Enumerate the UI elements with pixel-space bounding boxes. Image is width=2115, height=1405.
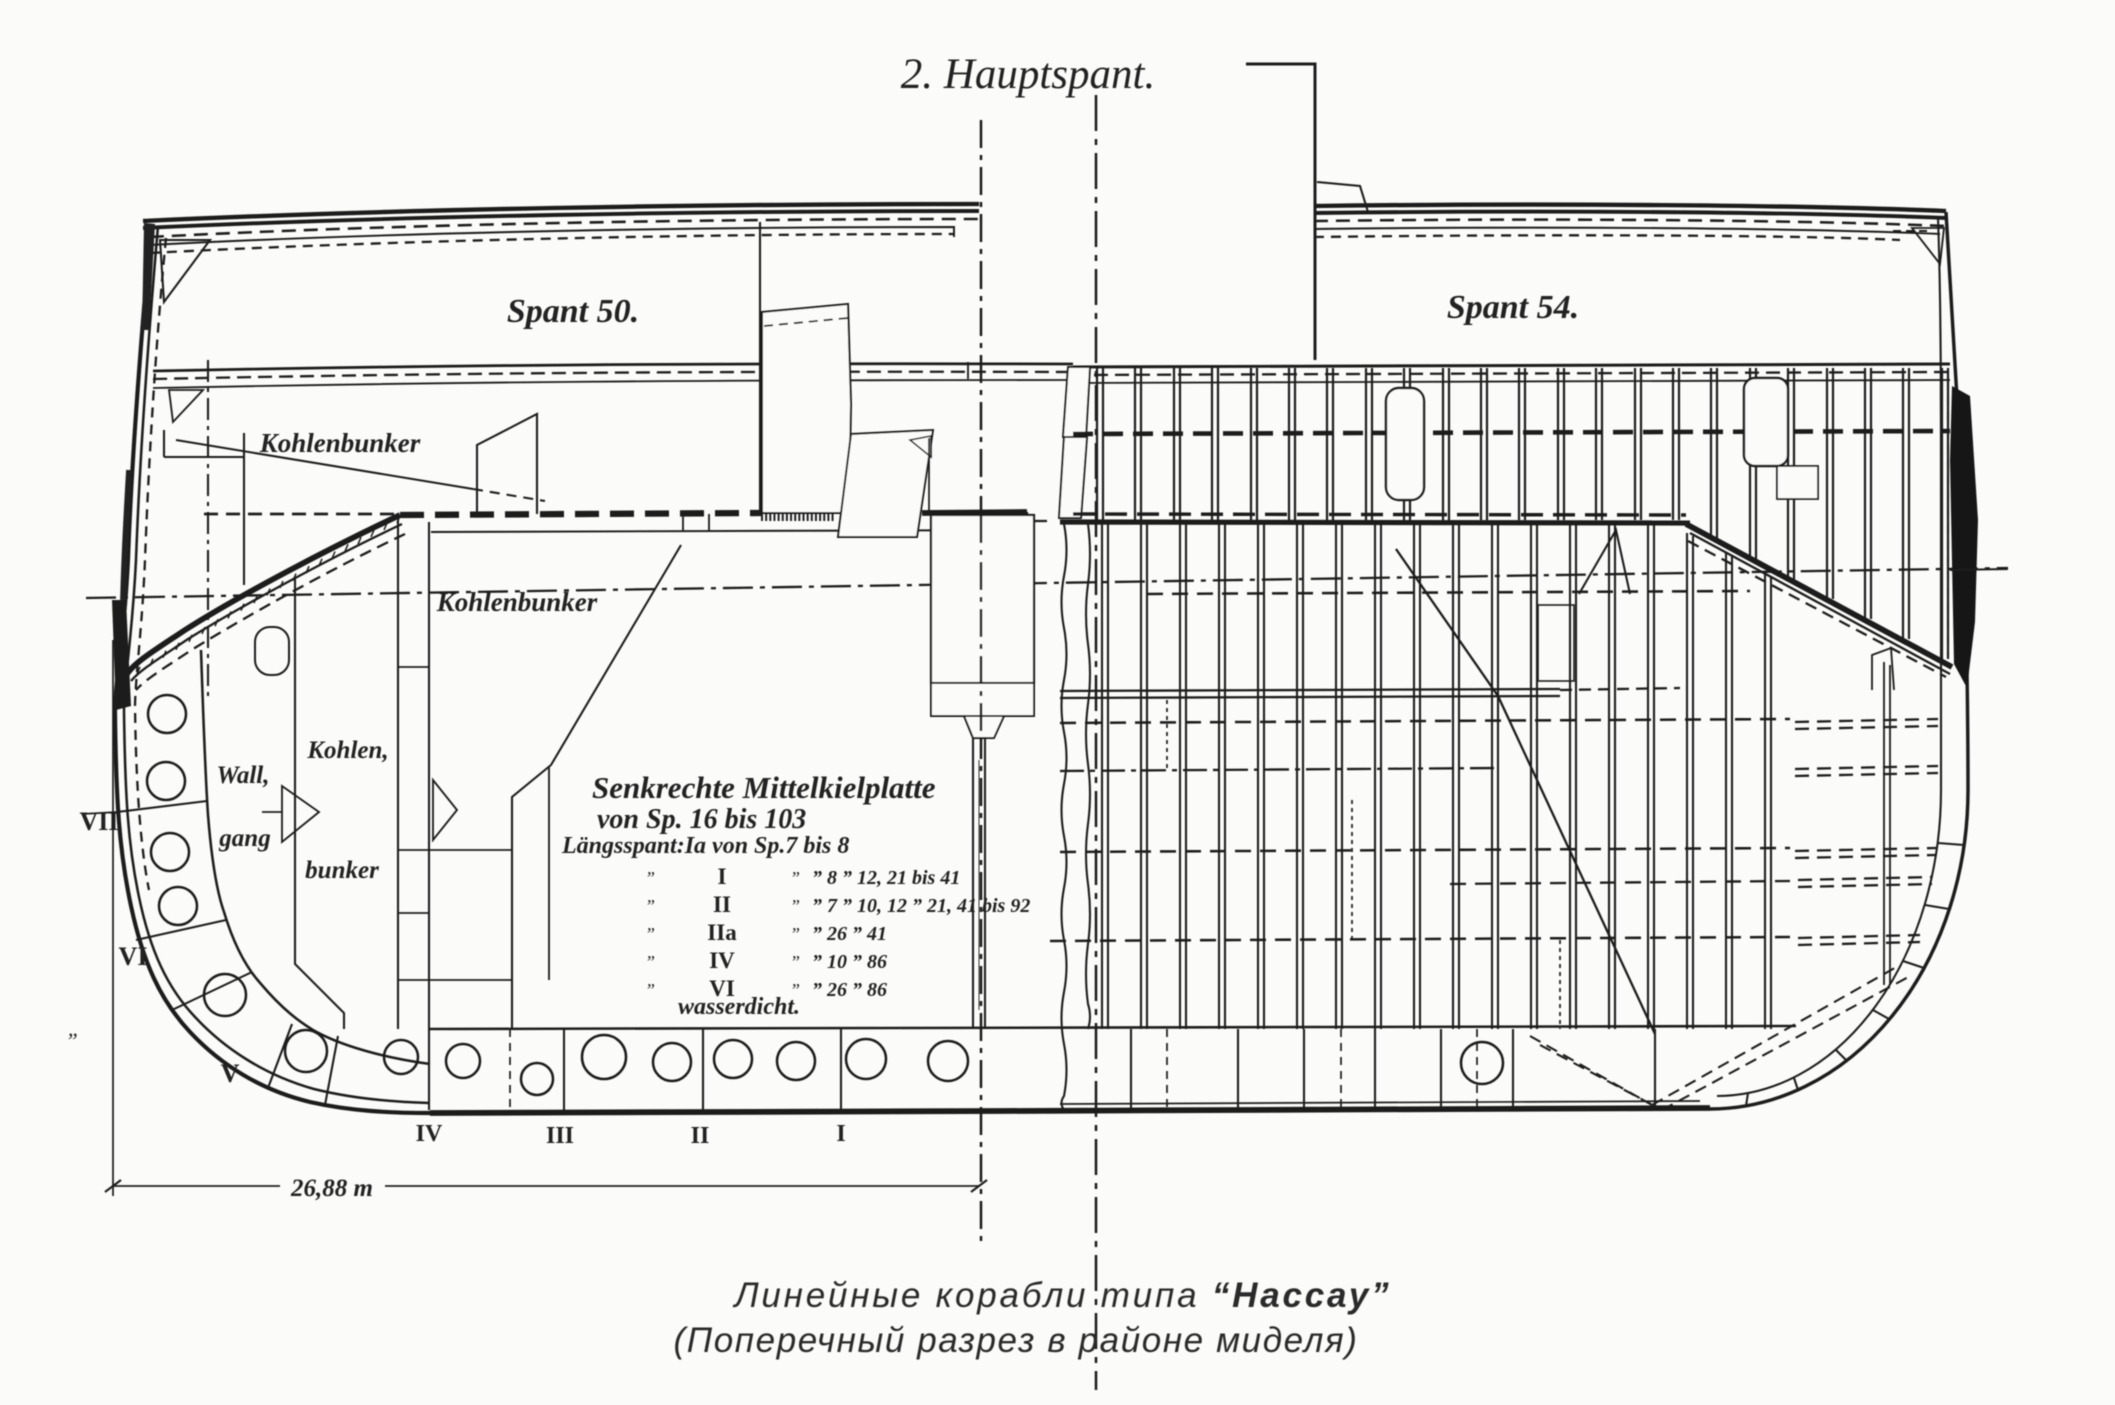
- svg-text:Kohlenbunker: Kohlenbunker: [259, 428, 421, 458]
- svg-text:I: I: [836, 1121, 845, 1147]
- svg-text:”: ”: [790, 952, 800, 972]
- svg-text:”: ”: [790, 868, 800, 888]
- svg-text:”: ”: [645, 980, 655, 1000]
- svg-text:” 26 ” 86: ” 26 ” 86: [812, 979, 887, 1001]
- svg-text:”: ”: [790, 924, 800, 944]
- svg-text:III: III: [546, 1123, 574, 1149]
- svg-text:Spant 54.: Spant 54.: [1447, 289, 1579, 326]
- svg-text:IV: IV: [709, 948, 735, 973]
- svg-text:von Sp. 16 bis 103: von Sp. 16 bis 103: [597, 804, 806, 835]
- svg-text:”: ”: [790, 896, 800, 916]
- svg-text:Spant 50.: Spant 50.: [507, 293, 639, 330]
- svg-text:”: ”: [645, 896, 655, 916]
- svg-text:wasserdicht.: wasserdicht.: [678, 994, 800, 1020]
- svg-text:II: II: [691, 1123, 710, 1149]
- svg-text:” 26 ” 41: ” 26 ” 41: [812, 923, 887, 945]
- svg-text:”: ”: [645, 924, 655, 944]
- svg-text:gang: gang: [218, 825, 270, 852]
- svg-text:bunker: bunker: [305, 857, 379, 884]
- svg-text:Längsspant:Ia von Sp.7 bis 8: Längsspant:Ia von Sp.7 bis 8: [561, 833, 849, 859]
- svg-text:Wall,: Wall,: [216, 762, 269, 789]
- svg-text:”: ”: [645, 952, 655, 972]
- svg-text:II: II: [713, 892, 731, 917]
- svg-text:Senkrechte Mittelkielplatte: Senkrechte Mittelkielplatte: [592, 770, 936, 805]
- svg-text:”: ”: [645, 868, 655, 888]
- svg-text:” 10 ” 86: ” 10 ” 86: [812, 951, 887, 973]
- svg-text:Kohlen,: Kohlen,: [306, 737, 388, 764]
- svg-text:(Поперечный разрез в районе ми: (Поперечный разрез в районе миделя): [674, 1321, 1359, 1360]
- svg-text:V: V: [221, 1059, 240, 1088]
- svg-text:” 7 ” 10, 12 ” 21, 41 bis 92: ” 7 ” 10, 12 ” 21, 41 bis 92: [812, 895, 1030, 917]
- svg-text:„: „: [68, 1016, 80, 1041]
- svg-text:Линейные корабли типа “Нассау”: Линейные корабли типа “Нассау”: [733, 1276, 1392, 1315]
- svg-text:I: I: [718, 864, 727, 889]
- svg-text:Kohlenbunker: Kohlenbunker: [436, 587, 598, 617]
- svg-text:IV: IV: [416, 1121, 443, 1147]
- svg-text:26,88 m: 26,88 m: [290, 1175, 373, 1202]
- svg-text:2. Hauptspant.: 2. Hauptspant.: [901, 51, 1155, 98]
- svg-text:” 8 ” 12, 21 bis 41: ” 8 ” 12, 21 bis 41: [812, 867, 960, 889]
- svg-text:IIa: IIa: [707, 920, 737, 945]
- svg-text:VI: VI: [119, 942, 148, 971]
